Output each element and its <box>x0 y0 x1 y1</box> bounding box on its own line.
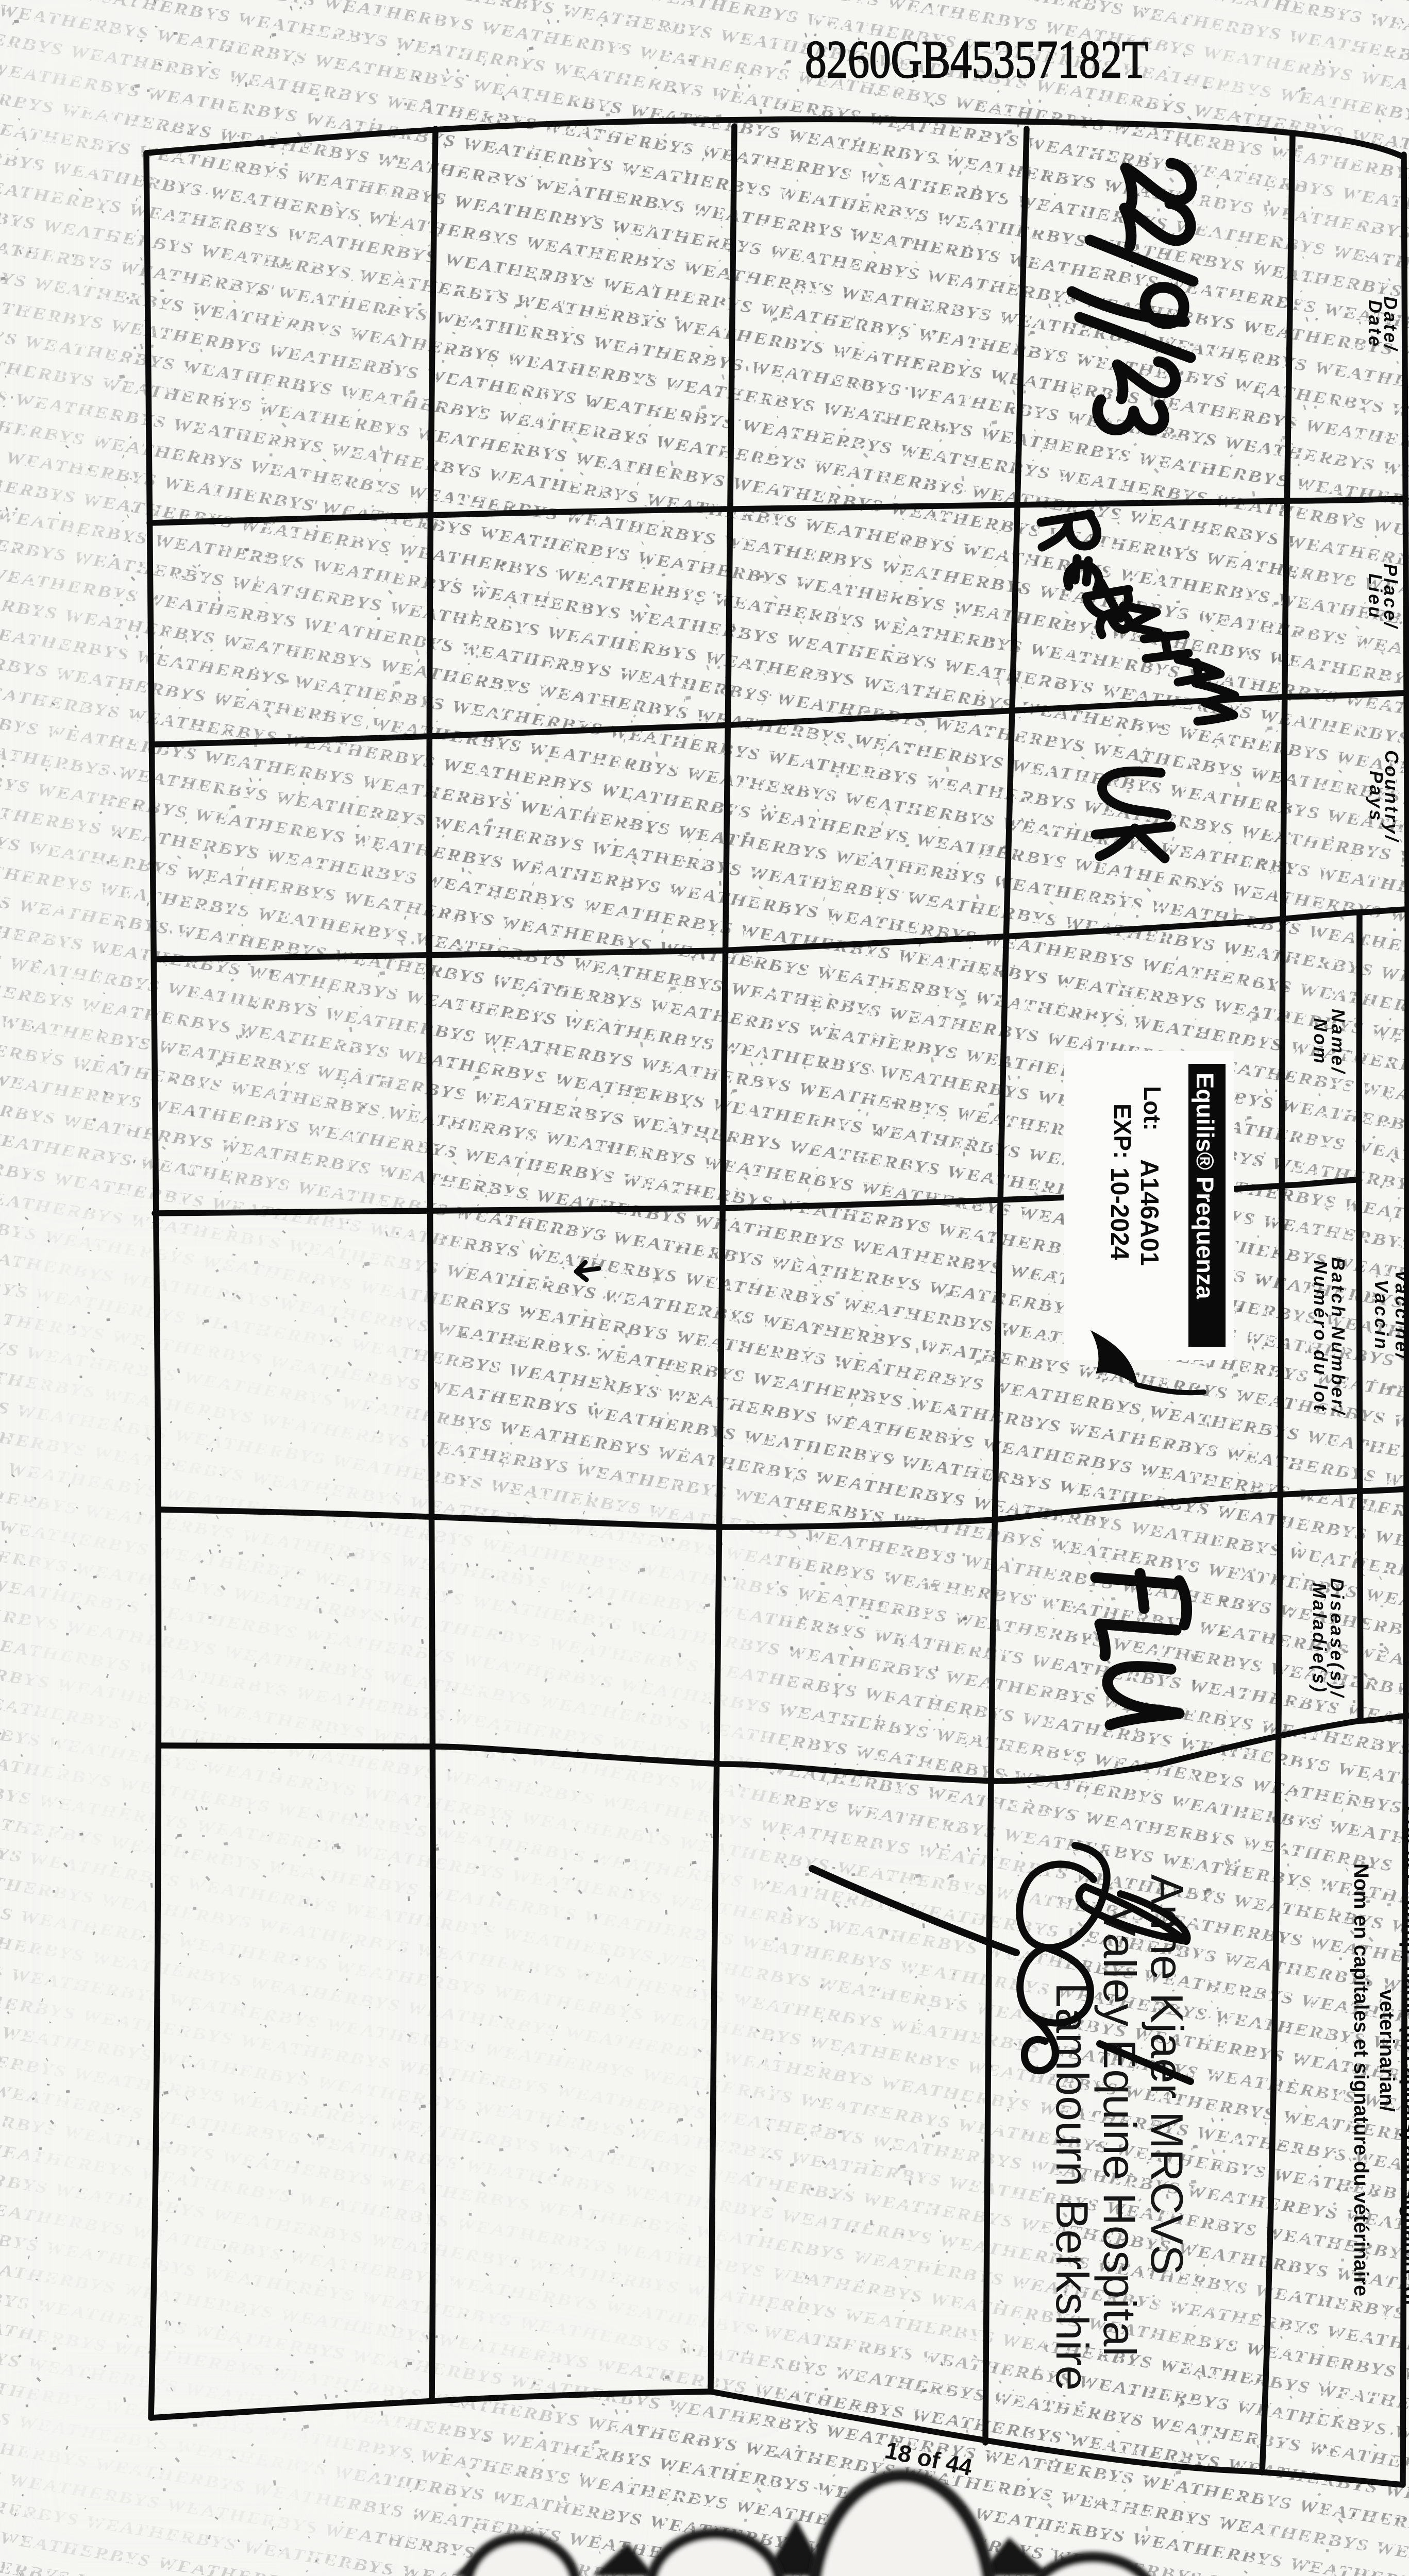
svg-text:Lot:: Lot: <box>1139 1086 1166 1131</box>
svg-text:A146A01: A146A01 <box>1135 1159 1163 1266</box>
svg-text:8260GB45357182T: 8260GB45357182T <box>805 30 1148 89</box>
svg-text:Name/Nom: Name/Nom <box>1310 1009 1349 1075</box>
svg-text:EXP:: EXP: <box>1109 1104 1136 1159</box>
svg-text:Disease(s)/Maladie(s): Disease(s)/Maladie(s) <box>1309 1578 1348 1699</box>
svg-text:10-2024: 10-2024 <box>1105 1167 1133 1260</box>
svg-text:Practice Stamp, name (in capit: Practice Stamp, name (in capitals) and s… <box>1399 1805 1409 2306</box>
svg-text:Vaccine/Vaccin: Vaccine/Vaccin <box>1371 1270 1409 1361</box>
svg-text:veterinarian/: veterinarian/ <box>1376 1989 1398 2112</box>
svg-text:Place/Lieu: Place/Lieu <box>1365 564 1401 630</box>
svg-text:Equilis® Prequenza: Equilis® Prequenza <box>1192 1073 1219 1299</box>
svg-text:Valley Equine Hospital: Valley Equine Hospital <box>1094 1906 1145 2357</box>
svg-text:Batch Number/Numéro du lot: Batch Number/Numéro du lot <box>1310 1257 1349 1416</box>
svg-text:Date/Date: Date/Date <box>1365 296 1401 352</box>
svg-text:Nom en capitales et signature: Nom en capitales et signature du vétérin… <box>1350 1863 1372 2296</box>
